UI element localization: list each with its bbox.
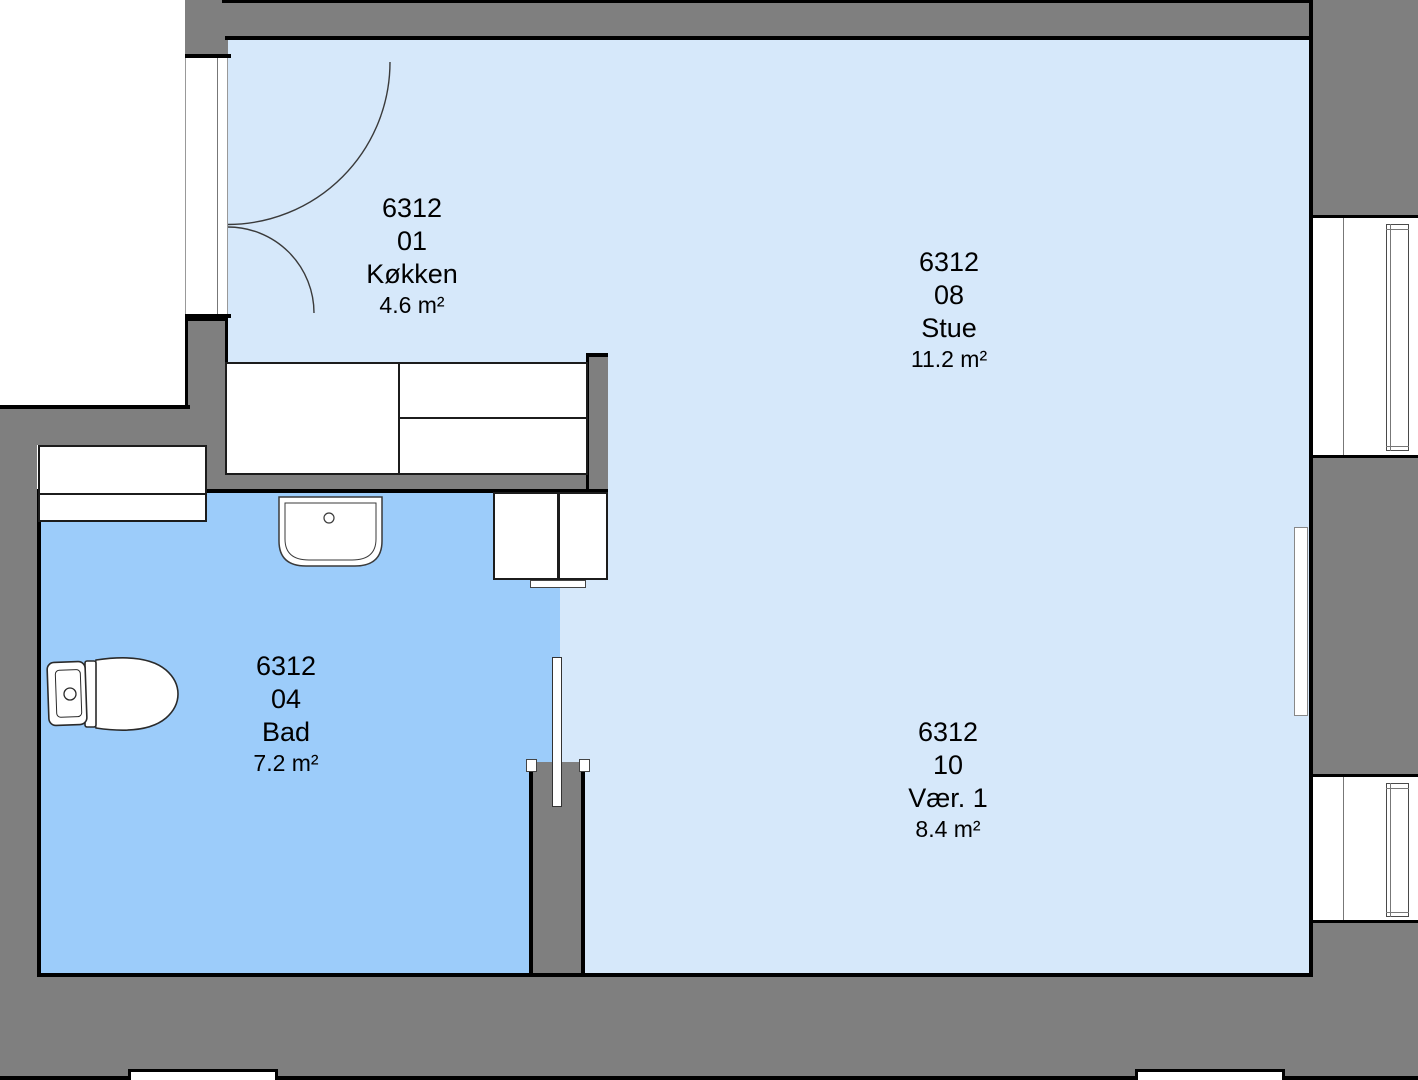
room-area: 8.4 m² (908, 815, 988, 843)
room-name: Vær. 1 (908, 782, 988, 815)
room-building-id: 6312 (911, 246, 987, 279)
room-building-id: 6312 (366, 192, 458, 225)
room-label-stue: 6312 08 Stue 11.2 m² (911, 246, 987, 373)
room-number: 08 (911, 279, 987, 312)
room-name: Stue (911, 312, 987, 345)
toilet-icon (47, 658, 178, 730)
room-area: 4.6 m² (366, 291, 458, 319)
sink-inner (285, 503, 376, 560)
room-label-vaer1: 6312 10 Vær. 1 8.4 m² (908, 716, 988, 843)
room-name: Bad (253, 716, 318, 749)
room-name: Køkken (366, 258, 458, 291)
bottom-opening-left (128, 1069, 278, 1080)
room-label-kokken: 6312 01 Køkken 4.6 m² (366, 192, 458, 319)
room-building-id: 6312 (253, 650, 318, 683)
sink-drain (324, 513, 334, 523)
room-area: 11.2 m² (911, 345, 987, 373)
room-area: 7.2 m² (253, 749, 318, 777)
fixtures-overlay (0, 0, 1418, 1080)
toilet-bowl (92, 658, 178, 730)
room-label-bad: 6312 04 Bad 7.2 m² (253, 650, 318, 777)
room-number: 10 (908, 749, 988, 782)
bottom-opening-right (1135, 1069, 1285, 1080)
sink-icon (279, 497, 382, 566)
room-number: 01 (366, 225, 458, 258)
room-building-id: 6312 (908, 716, 988, 749)
room-number: 04 (253, 683, 318, 716)
floor-plan: 6312 01 Køkken 4.6 m² 6312 08 Stue 11.2 … (0, 0, 1418, 1080)
toilet-flush-button (64, 688, 76, 700)
